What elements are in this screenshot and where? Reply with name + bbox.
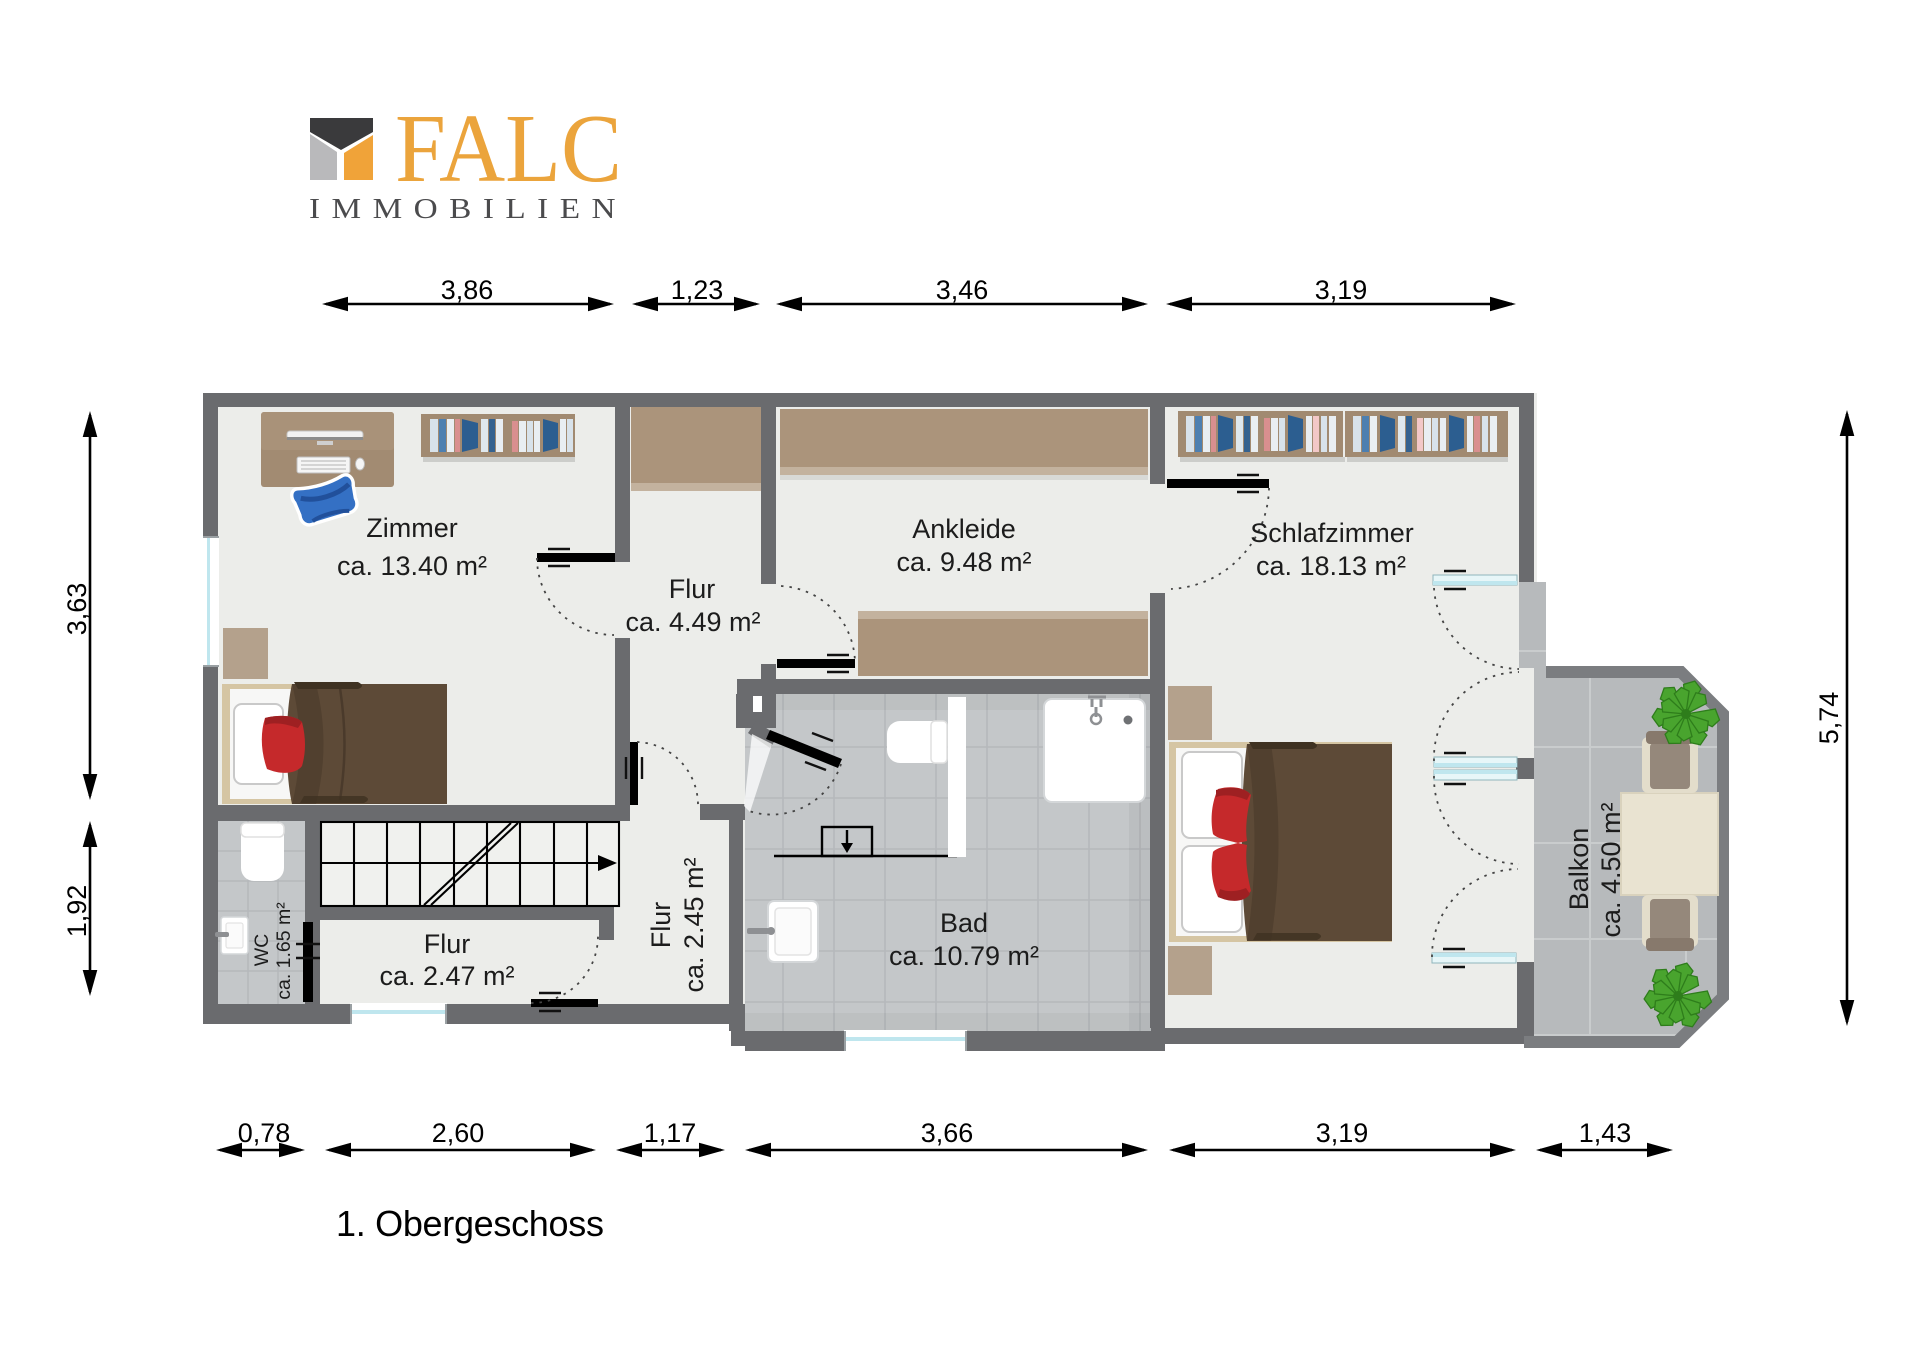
svg-text:0,78: 0,78 — [238, 1118, 291, 1148]
svg-text:2,60: 2,60 — [432, 1118, 485, 1148]
svg-text:3,63: 3,63 — [62, 583, 92, 636]
svg-text:Ankleide: Ankleide — [912, 514, 1016, 544]
svg-text:3,86: 3,86 — [441, 275, 494, 305]
svg-text:IMMOBILIEN: IMMOBILIEN — [309, 193, 627, 225]
svg-text:Bad: Bad — [940, 908, 988, 938]
svg-text:ca. 2.45 m²: ca. 2.45 m² — [679, 857, 709, 992]
svg-text:3,19: 3,19 — [1315, 275, 1368, 305]
svg-text:3,66: 3,66 — [921, 1118, 974, 1148]
svg-text:Balkon: Balkon — [1564, 828, 1594, 911]
svg-text:Zimmer: Zimmer — [366, 513, 457, 543]
svg-text:Flur: Flur — [669, 574, 716, 604]
svg-text:WC: WC — [251, 934, 273, 967]
svg-text:ca. 4.49 m²: ca. 4.49 m² — [625, 607, 760, 637]
svg-text:Flur: Flur — [646, 902, 676, 949]
svg-text:3,46: 3,46 — [936, 275, 989, 305]
svg-text:1,23: 1,23 — [671, 275, 724, 305]
svg-text:3,19: 3,19 — [1316, 1118, 1369, 1148]
svg-text:Schlafzimmer: Schlafzimmer — [1250, 518, 1414, 548]
svg-text:FALC: FALC — [395, 95, 622, 202]
svg-text:ca. 9.48 m²: ca. 9.48 m² — [896, 547, 1031, 577]
svg-text:ca. 18.13 m²: ca. 18.13 m² — [1256, 551, 1406, 581]
svg-text:ca. 13.40 m²: ca. 13.40 m² — [337, 551, 487, 581]
svg-text:1,17: 1,17 — [644, 1118, 697, 1148]
svg-text:ca. 4.50 m²: ca. 4.50 m² — [1596, 802, 1626, 937]
svg-text:ca. 10.79 m²: ca. 10.79 m² — [889, 941, 1039, 971]
svg-text:ca. 2.47 m²: ca. 2.47 m² — [379, 961, 514, 991]
svg-text:1. Obergeschoss: 1. Obergeschoss — [336, 1203, 604, 1244]
svg-text:ca. 1.65 m²: ca. 1.65 m² — [273, 902, 295, 1000]
svg-text:Flur: Flur — [424, 929, 471, 959]
svg-text:1,43: 1,43 — [1579, 1118, 1632, 1148]
svg-text:1,92: 1,92 — [62, 885, 92, 938]
svg-text:5,74: 5,74 — [1814, 692, 1844, 745]
